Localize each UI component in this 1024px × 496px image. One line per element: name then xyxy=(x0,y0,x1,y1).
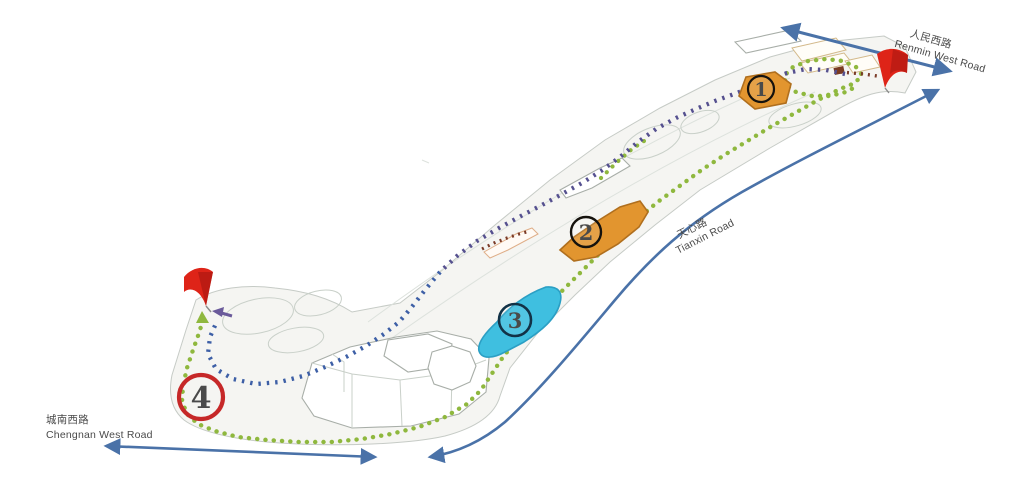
chengnan-road-arrow xyxy=(106,446,375,457)
chengnan-road-label: 城南西路 Chengnan West Road xyxy=(46,413,153,441)
stray-mark xyxy=(422,160,429,163)
chengnan-road-label-en: Chengnan West Road xyxy=(46,429,153,441)
site-plan: 1 2 3 4 人民西路 Renmin West Road 天心路 Tianxi… xyxy=(0,0,1024,496)
marker-3-number: 3 xyxy=(508,308,523,333)
building-outline xyxy=(735,30,801,53)
marker-1-badge: 1 xyxy=(748,76,774,102)
marker-1-number: 1 xyxy=(754,79,767,101)
marker-2-badge: 2 xyxy=(571,217,601,247)
tianxin-road-label: 天心路 Tianxin Road xyxy=(668,205,737,257)
chengnan-road-label-zh: 城南西路 xyxy=(46,413,89,426)
marker-2-number: 2 xyxy=(579,220,594,245)
site-plan-svg: 1 2 3 4 人民西路 Renmin West Road 天心路 Tianxi… xyxy=(0,0,1024,496)
marker-3-badge: 3 xyxy=(499,304,531,336)
marker-4-number: 4 xyxy=(191,381,212,416)
